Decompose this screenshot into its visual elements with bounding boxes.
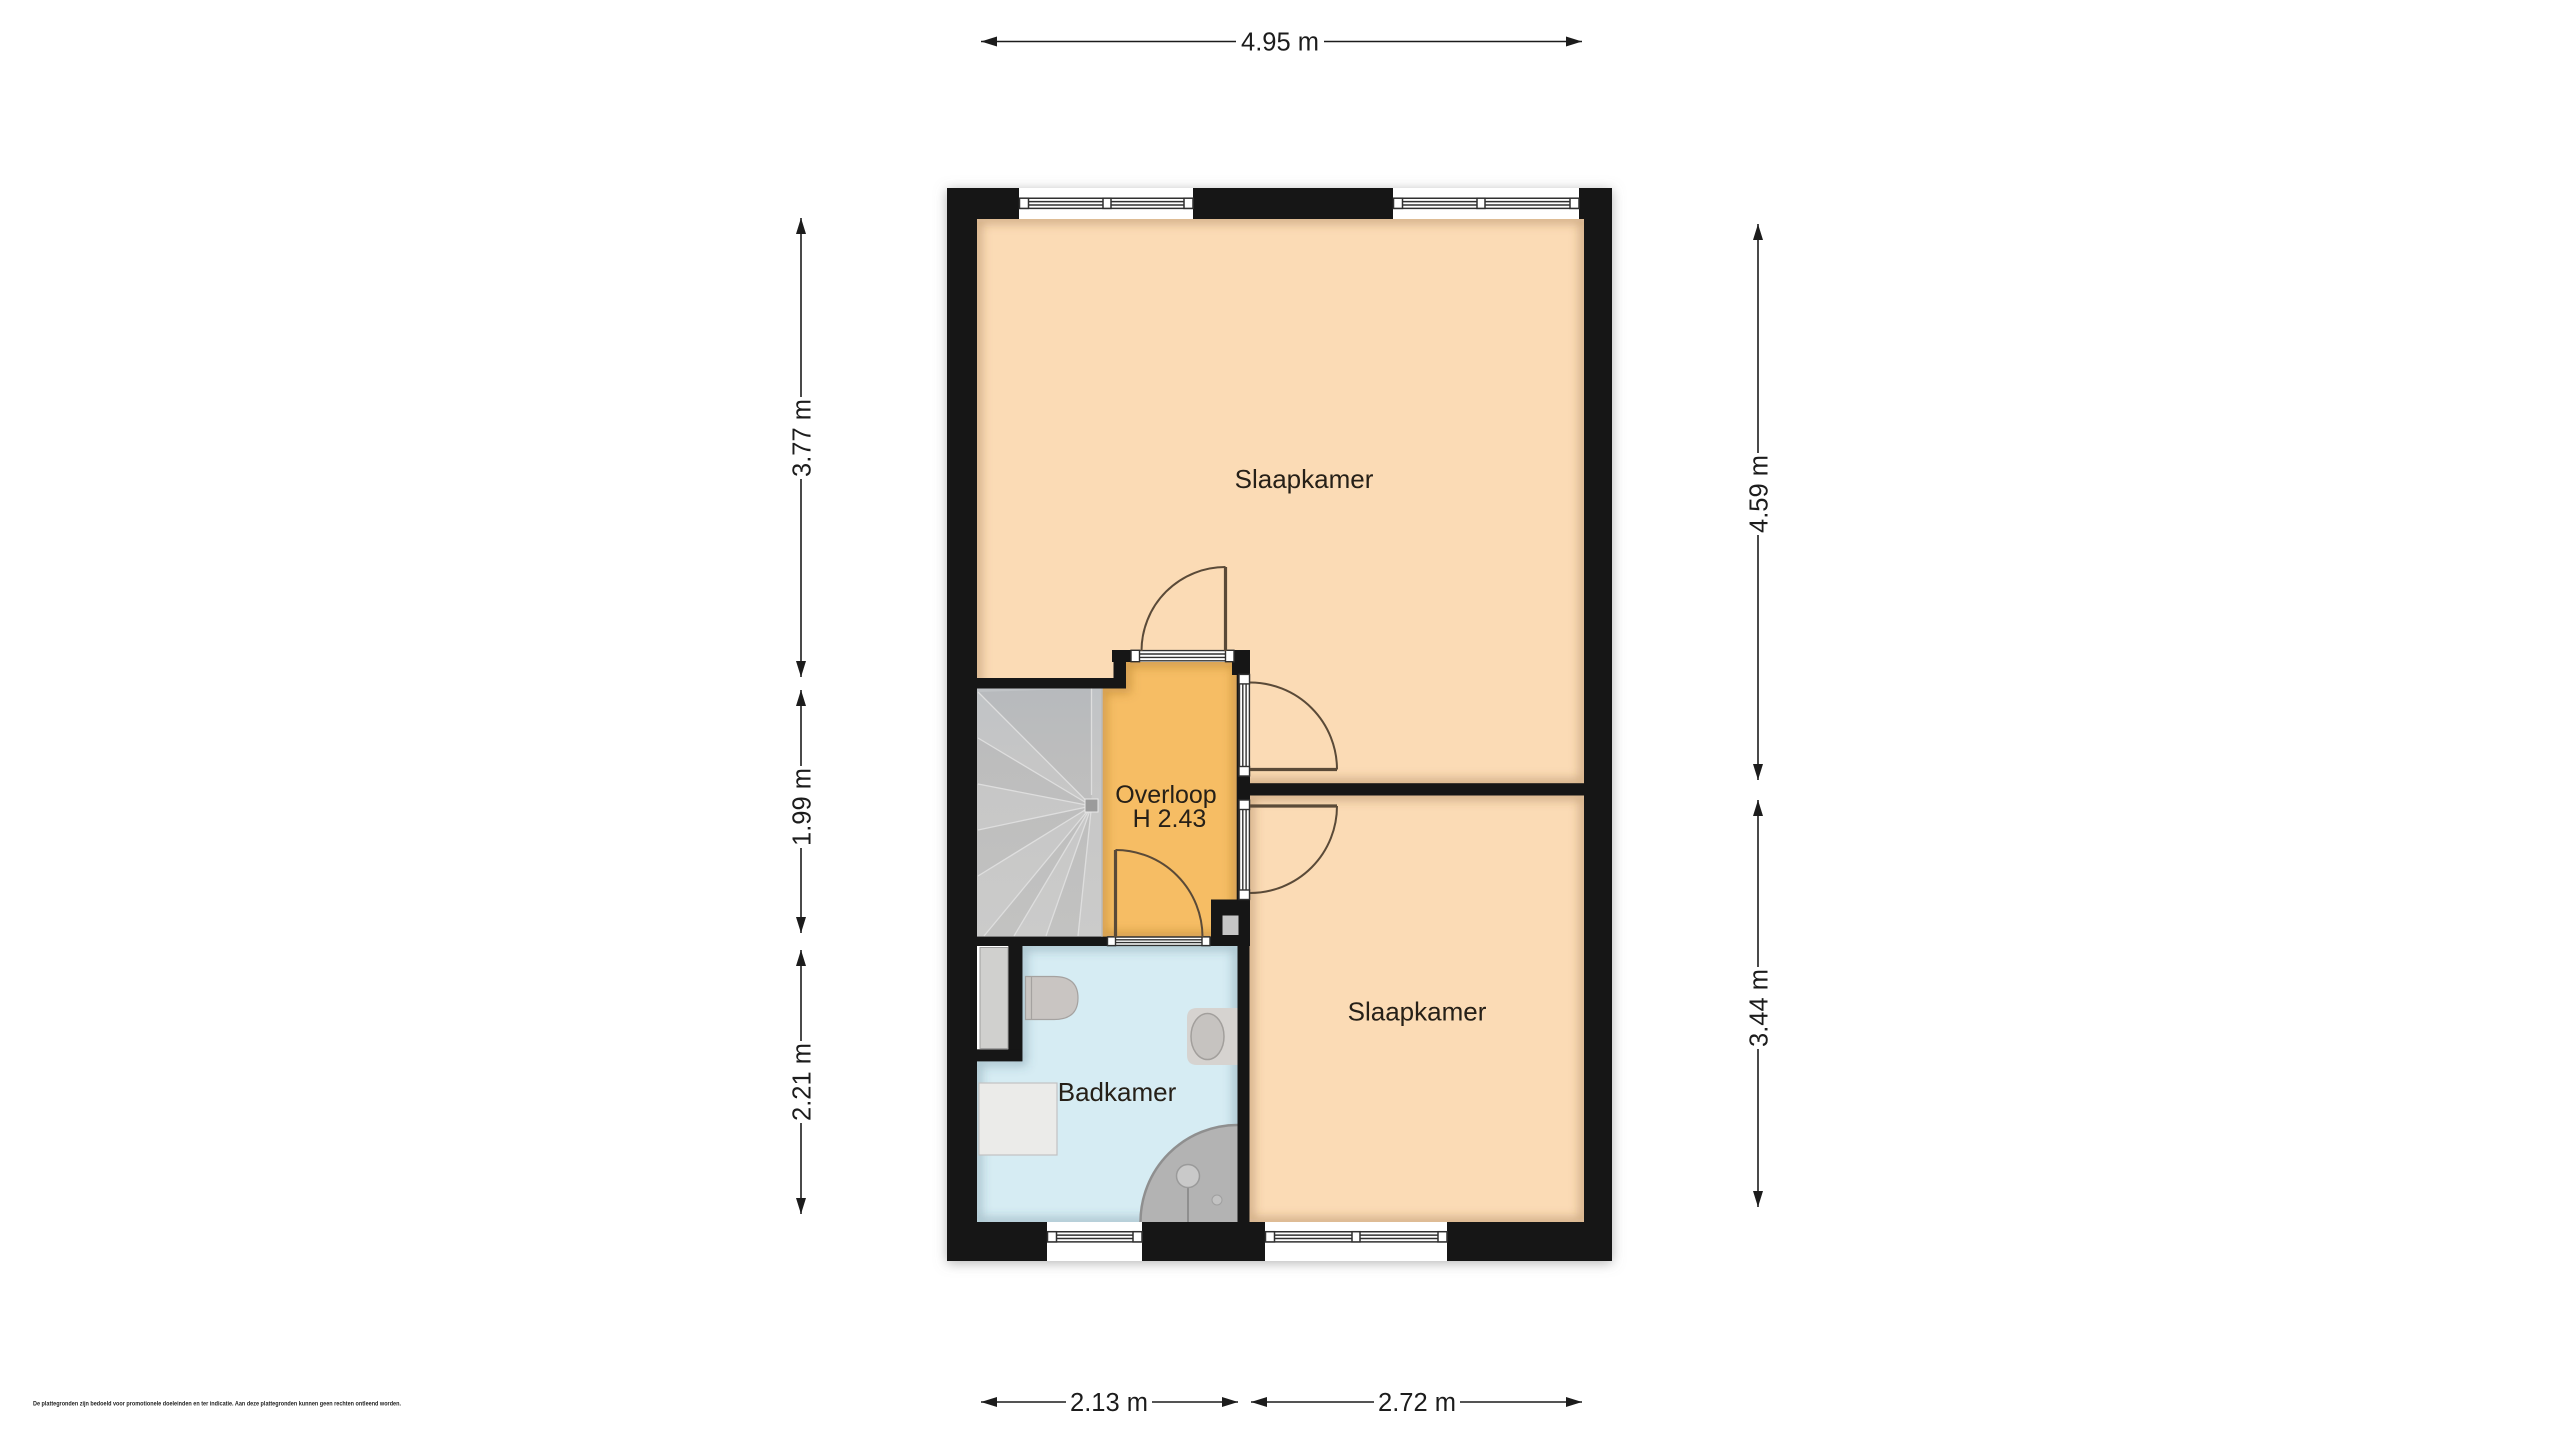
svg-text:4.59 m: 4.59 m	[1746, 455, 1774, 533]
svg-text:3.44 m: 3.44 m	[1746, 969, 1774, 1047]
svg-text:De plattegronden zijn bedoeld: De plattegronden zijn bedoeld voor promo…	[33, 1401, 401, 1408]
svg-text:4.95 m: 4.95 m	[1241, 29, 1319, 57]
svg-text:3.77 m: 3.77 m	[789, 399, 817, 477]
svg-text:Slaapkamer: Slaapkamer	[1235, 464, 1374, 494]
svg-text:1.99 m: 1.99 m	[789, 768, 817, 846]
svg-text:H 2.43: H 2.43	[1133, 805, 1207, 833]
svg-text:2.72 m: 2.72 m	[1378, 1389, 1456, 1417]
svg-text:Slaapkamer: Slaapkamer	[1348, 997, 1487, 1027]
svg-text:2.13 m: 2.13 m	[1070, 1389, 1148, 1417]
svg-text:Badkamer: Badkamer	[1058, 1077, 1177, 1107]
svg-text:2.21 m: 2.21 m	[789, 1043, 817, 1121]
